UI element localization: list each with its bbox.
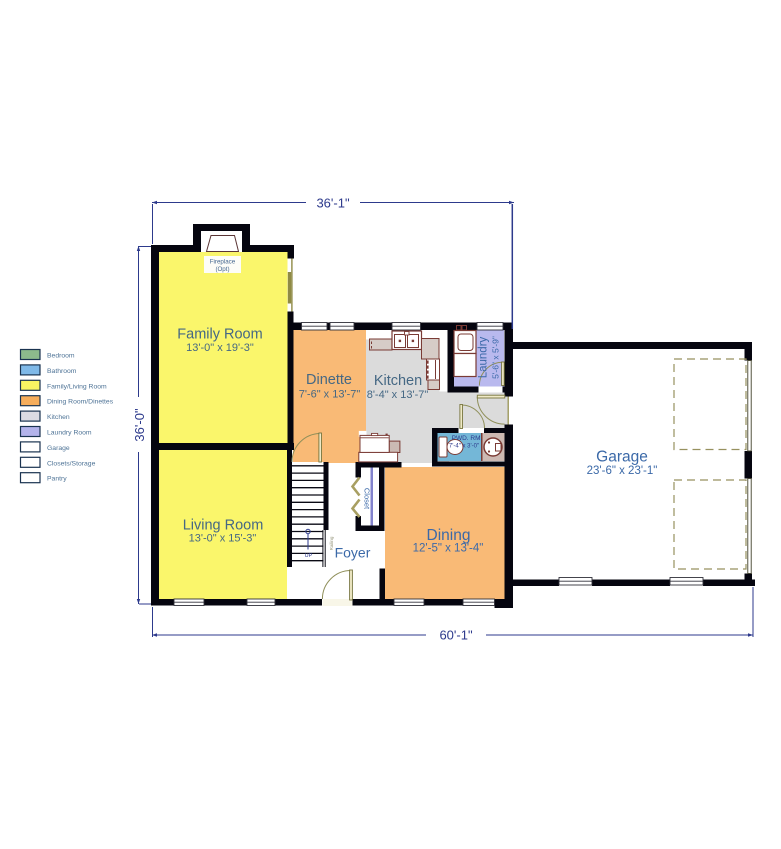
svg-text:Foyer: Foyer xyxy=(335,545,371,561)
svg-text:Family/Living Room: Family/Living Room xyxy=(47,383,107,390)
svg-text:Pantry: Pantry xyxy=(47,476,67,483)
svg-text:36'-0": 36'-0" xyxy=(132,408,147,442)
svg-text:Bathroom: Bathroom xyxy=(47,368,77,375)
svg-text:Fireplace: Fireplace xyxy=(210,259,236,266)
svg-text:Railing: Railing xyxy=(329,536,334,550)
svg-text:Closet: Closet xyxy=(363,488,372,510)
svg-text:UP: UP xyxy=(305,553,313,559)
svg-text:23'-6" x 23'-1": 23'-6" x 23'-1" xyxy=(587,465,658,477)
svg-text:8'-4" x 13'-7": 8'-4" x 13'-7" xyxy=(367,389,429,401)
svg-text:Kitchen: Kitchen xyxy=(47,414,70,421)
svg-text:Garage: Garage xyxy=(47,445,70,452)
svg-text:Laundry Room: Laundry Room xyxy=(47,430,92,437)
svg-text:5'-6" x 5'-9": 5'-6" x 5'-9" xyxy=(491,336,501,379)
svg-text:(Opt): (Opt) xyxy=(215,266,229,273)
svg-text:Garage: Garage xyxy=(596,449,648,466)
svg-text:Laundry: Laundry xyxy=(478,336,490,378)
svg-text:Dinette: Dinette xyxy=(306,372,352,388)
svg-text:Closets/Storage: Closets/Storage xyxy=(47,460,96,467)
svg-text:Dining: Dining xyxy=(427,527,471,544)
svg-text:36'-1": 36'-1" xyxy=(316,196,350,211)
svg-text:13'-0" x 15'-3": 13'-0" x 15'-3" xyxy=(189,533,257,545)
svg-text:7'-6" x 13'-7": 7'-6" x 13'-7" xyxy=(299,389,361,401)
svg-text:Family Room: Family Room xyxy=(177,327,262,343)
svg-text:60'-1": 60'-1" xyxy=(439,628,473,643)
svg-text:Living Room: Living Room xyxy=(183,518,264,534)
svg-text:13'-0" x 19'-3": 13'-0" x 19'-3" xyxy=(186,342,254,354)
svg-text:12'-5" x 13'-4": 12'-5" x 13'-4" xyxy=(413,543,484,555)
svg-text:Bedroom: Bedroom xyxy=(47,353,75,360)
svg-text:Dining Room/Dinettes: Dining Room/Dinettes xyxy=(47,399,114,406)
svg-text:PWD. RM.: PWD. RM. xyxy=(452,435,483,442)
svg-text:Kitchen: Kitchen xyxy=(374,373,422,389)
svg-text:7'-4" x 3'-0": 7'-4" x 3'-0" xyxy=(449,444,479,450)
